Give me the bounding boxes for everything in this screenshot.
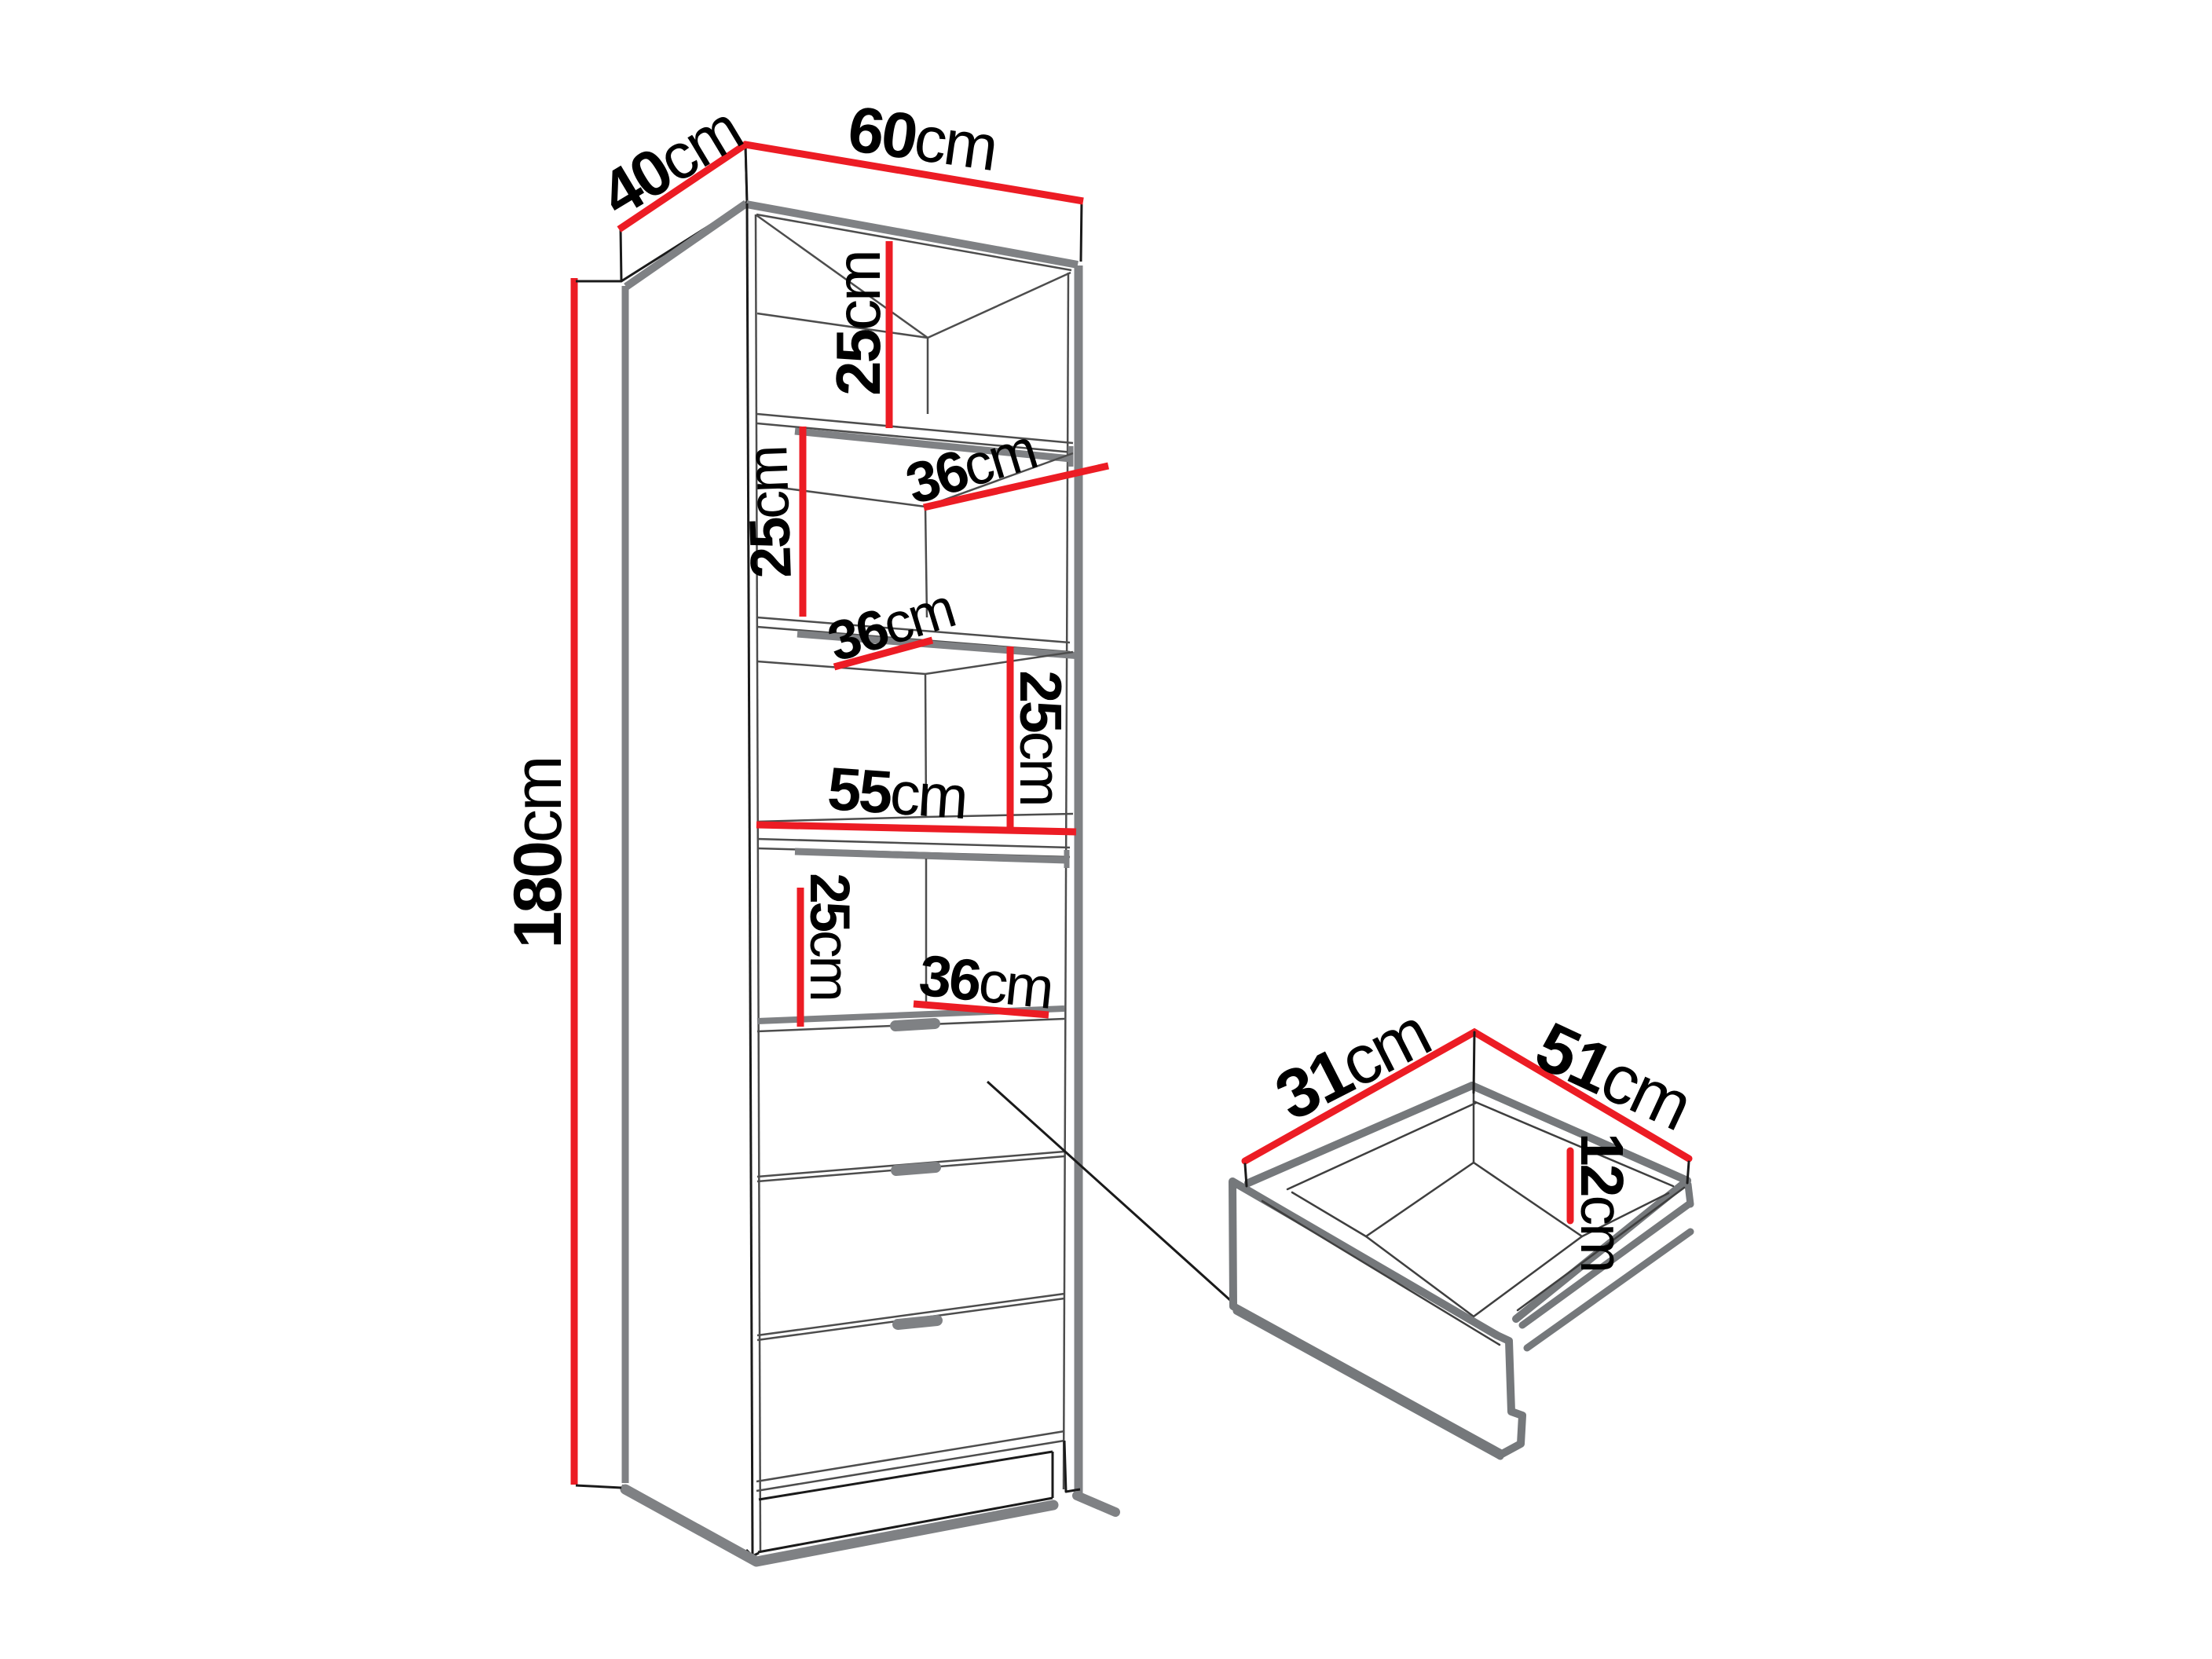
svg-text:55cm: 55cm <box>826 755 969 832</box>
svg-text:25cm: 25cm <box>798 873 860 1000</box>
svg-text:12cm: 12cm <box>1568 1133 1635 1271</box>
svg-text:25cm: 25cm <box>735 446 804 579</box>
svg-text:36cm: 36cm <box>916 943 1055 1021</box>
svg-text:25cm: 25cm <box>823 251 893 396</box>
svg-text:180cm: 180cm <box>500 757 576 948</box>
svg-text:25cm: 25cm <box>1008 670 1074 804</box>
